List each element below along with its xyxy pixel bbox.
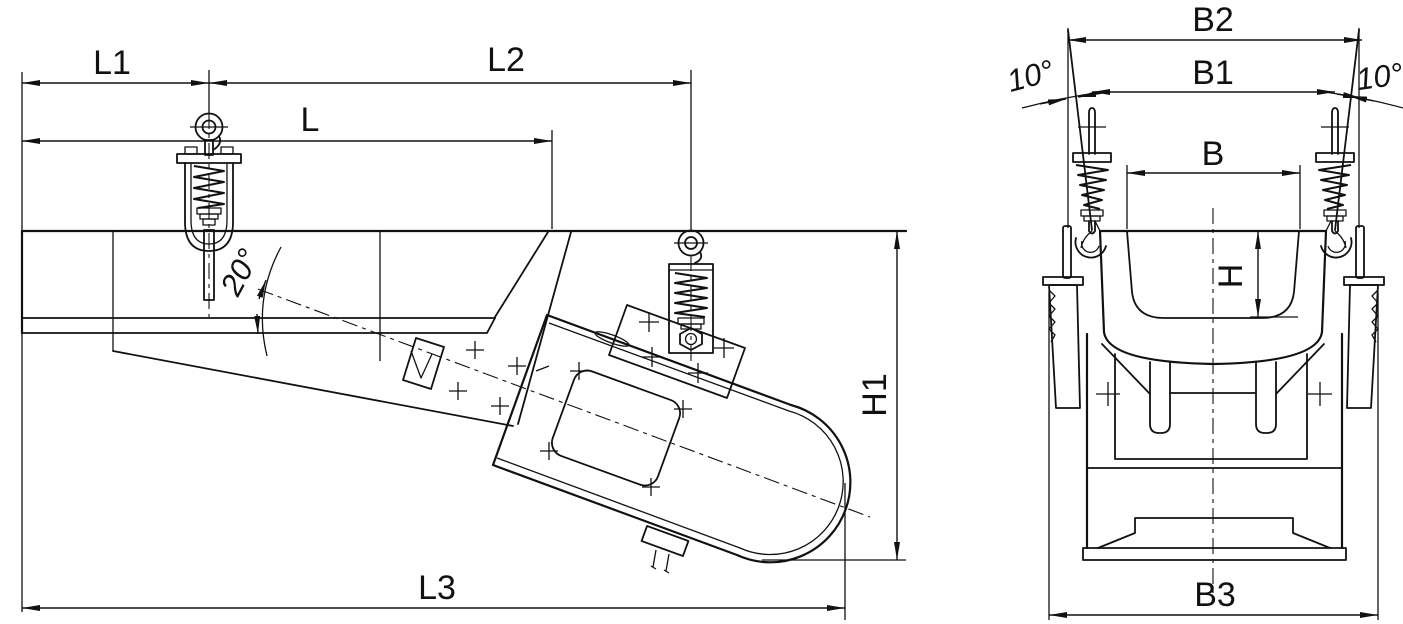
angle-arrow-10-left-a [1040,99,1066,104]
body-base-plate [1083,548,1346,560]
feeder-tray [22,231,906,426]
rear-hanger-assembly [669,231,713,363]
drawing-canvas: L1 L2 L L3 H1 20° [0,0,1403,624]
angle-label-10-left: 10° [1003,53,1057,99]
dimension-label-h1: H1 [856,373,894,416]
terminal-box [642,526,689,556]
left-bracket-body [1049,285,1080,408]
dimension-label-l: L [301,101,320,139]
dimension-label-l2: L2 [487,41,525,79]
dimension-label-b1: B1 [1192,54,1234,92]
left-spring-nut-1 [1081,210,1103,216]
core-leg-right [1256,362,1276,433]
left-conical-spring [1076,165,1108,209]
front-plate-nut-right [221,147,233,154]
dimension-label-h: H [1212,264,1250,289]
terminal-pins [651,550,669,573]
dimension-label-b: B [1202,135,1225,173]
angle-label-20: 20° [213,243,266,302]
direction-flag-glyph [411,351,432,378]
angle-arrow-20-lower [257,314,258,334]
end-view: B2 B1 B B3 H 10° 10° [1003,1,1403,620]
tray-incline-bottom-edge [113,351,513,426]
dimension-label-l3: L3 [418,569,456,607]
left-spring-plate [1073,153,1111,162]
body-bottom-pad [1098,518,1330,548]
right-spring-nut-1 [1324,210,1346,216]
right-bracket-body [1347,285,1378,408]
trough-rim-flick-right [1326,221,1331,231]
rear-coil-spring [675,273,707,317]
magnet-body [1083,334,1346,560]
angle-arc-20 [262,247,281,356]
dimension-label-l1: L1 [93,44,131,82]
right-hanger-rod [1332,108,1338,154]
core-window [1115,354,1307,459]
dimension-label-b3: B3 [1194,576,1236,614]
left-hanger-rod [1089,108,1095,154]
fork-step-line [536,366,549,371]
right-conical-spring [1319,165,1351,209]
vibrator-body [493,305,850,573]
left-clevis-inner [1082,241,1099,252]
vibrator-coil-box [548,367,684,490]
vibrator-housing-inner [497,323,843,555]
side-view: L1 L2 L L3 H1 20° [22,41,906,620]
hopper-diagonal-right [1276,344,1324,394]
left-spring-nut-2 [1084,216,1100,221]
side-extension-lines [22,70,845,620]
right-safety-bar [1356,226,1364,278]
front-plate-nut-left [185,147,197,154]
right-spring-nut-2 [1327,216,1343,221]
right-spring-plate [1316,153,1354,162]
dimension-label-b2: B2 [1192,1,1234,39]
right-clevis-inner [1328,241,1345,252]
drawing-page: L1 L2 L L3 H1 20° [0,0,1403,624]
side-dimensions: L1 L2 L L3 H1 20° [22,41,906,608]
tray-rear-diagonal-1 [495,232,548,317]
angle-label-10-right: 10° [1354,56,1403,97]
body-bolt-crosses [1096,382,1332,406]
core-leg-left [1150,362,1170,433]
left-safety-bar [1063,226,1071,278]
hopper-diagonal-left [1102,344,1150,394]
